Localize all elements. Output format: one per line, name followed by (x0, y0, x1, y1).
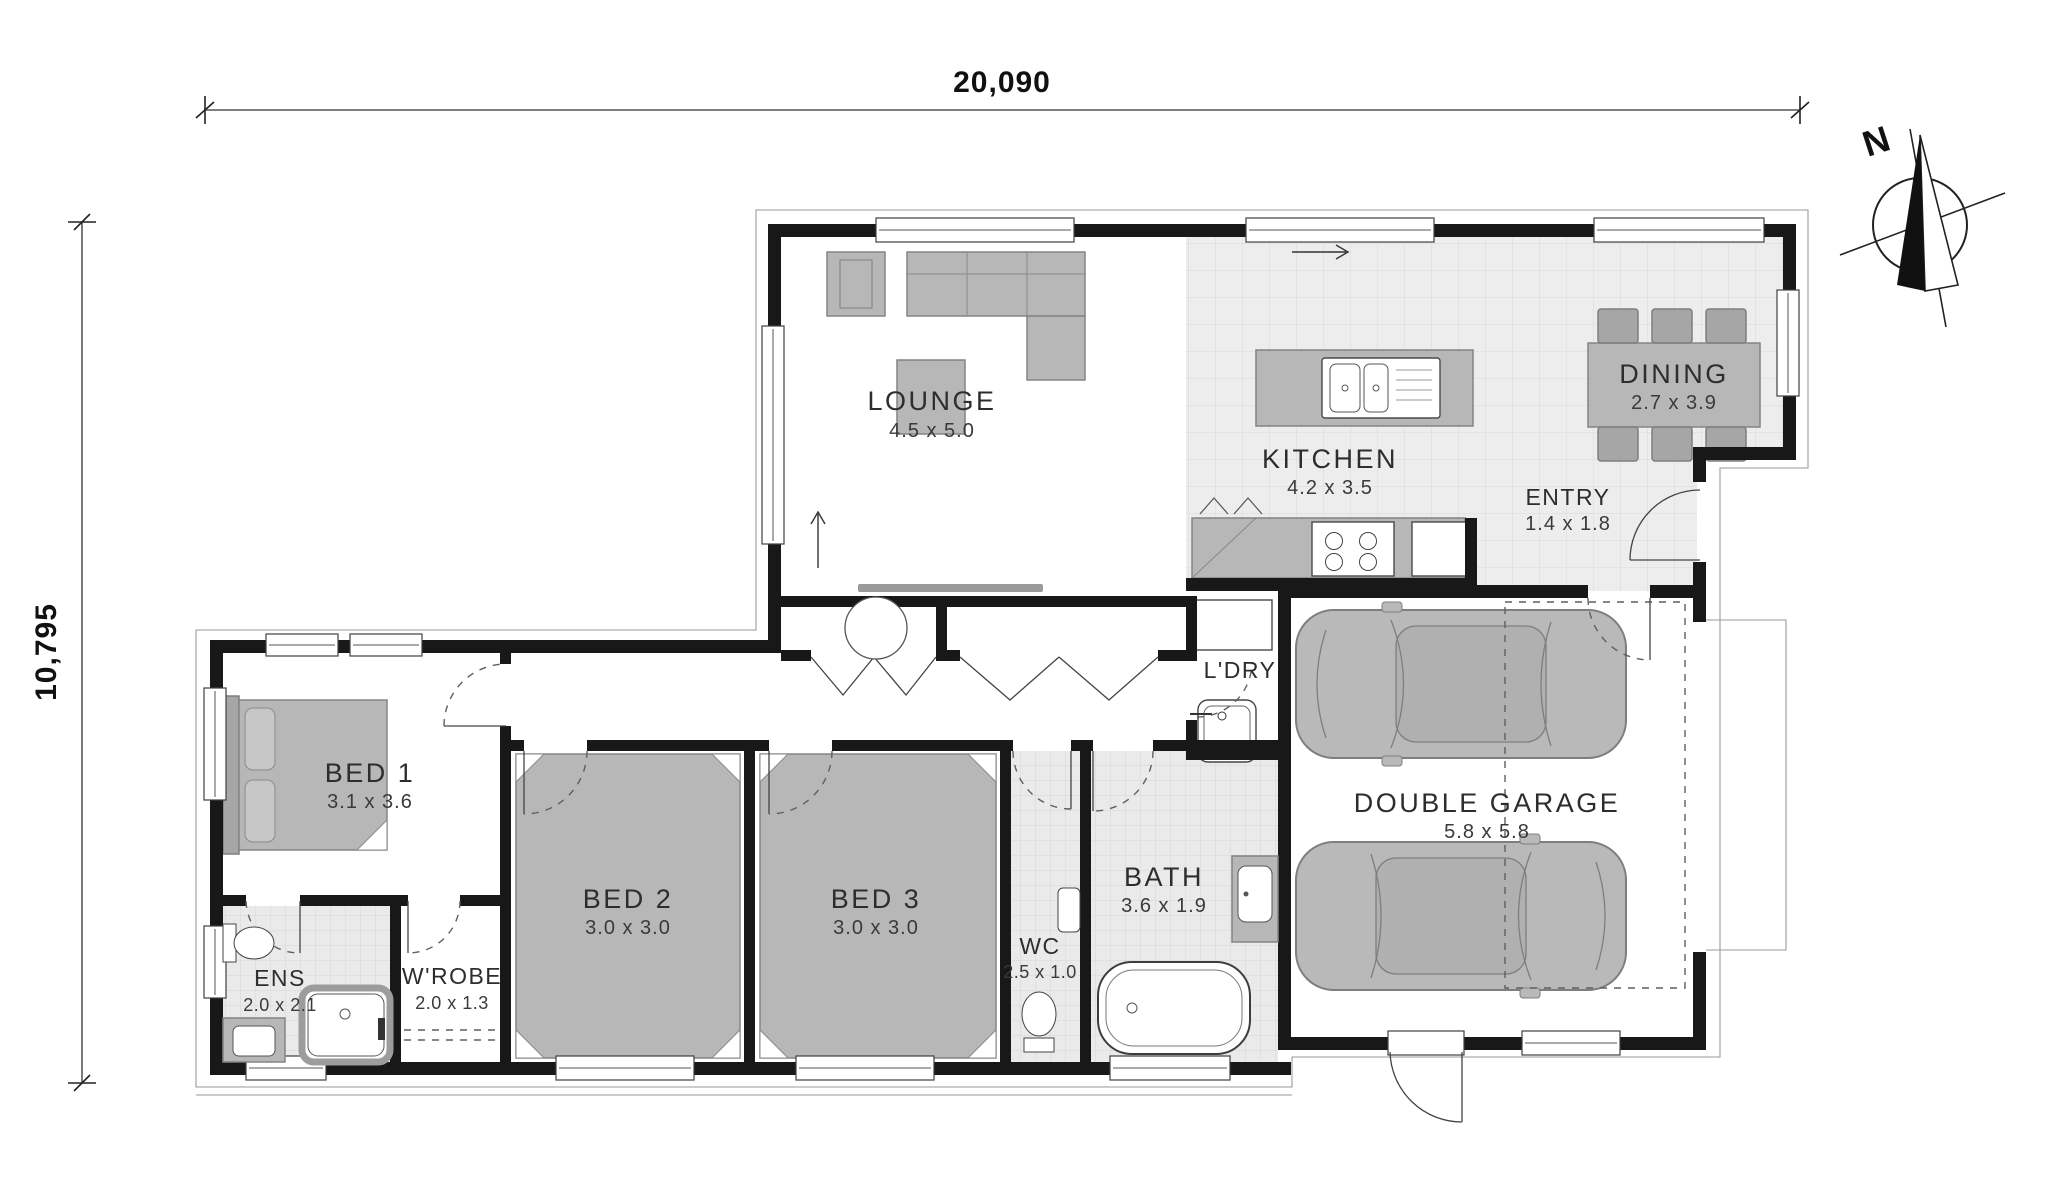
window (1522, 1031, 1620, 1055)
dining-name: DINING (1619, 359, 1729, 389)
wrobe-name: W'ROBE (402, 963, 502, 989)
north-label: N (1857, 118, 1894, 165)
door-swing (444, 664, 506, 726)
dining-dims: 2.7 x 3.9 (1631, 392, 1717, 414)
cooktop (1312, 522, 1394, 576)
room-label-bath: BATH 3.6 x 1.9 (1121, 862, 1207, 917)
kitchen-dims: 4.2 x 3.5 (1287, 477, 1373, 499)
window (876, 218, 1074, 242)
window (1594, 218, 1764, 242)
sofa-chaise (1027, 316, 1085, 380)
fridge (1412, 522, 1468, 576)
bath-dims: 3.6 x 1.9 (1121, 895, 1207, 917)
room-label-bed1: BED 1 3.1 x 3.6 (325, 758, 416, 813)
dimension-top: 20,090 (196, 66, 1809, 124)
ens-dims: 2.0 x 2.1 (243, 995, 317, 1015)
car (1296, 834, 1626, 998)
window (556, 1056, 694, 1080)
bath-basin (1238, 866, 1272, 922)
bathtub (1098, 962, 1250, 1054)
bed3-name: BED 3 (831, 884, 922, 914)
ldry-name: L'DRY (1204, 657, 1277, 683)
room-label-ens: ENS 2.0 x 2.1 (243, 965, 317, 1015)
room-label-wrobe: W'ROBE 2.0 x 1.3 (402, 963, 502, 1013)
bed3-dims: 3.0 x 3.0 (833, 917, 919, 939)
room-label-ldry: L'DRY (1204, 657, 1277, 683)
bifold-door (811, 657, 1158, 700)
bed2-dims: 3.0 x 3.0 (585, 917, 671, 939)
ens-name: ENS (254, 965, 306, 991)
window (1246, 218, 1434, 242)
toilet (1022, 992, 1056, 1052)
window (266, 634, 338, 656)
sofa (907, 252, 1085, 316)
overall-depth-label: 10,795 (30, 603, 63, 701)
room-label-entry: ENTRY 1.4 x 1.8 (1525, 484, 1611, 535)
room-label-garage: DOUBLE GARAGE 5.8 x 5.8 (1354, 788, 1621, 843)
bed1-name: BED 1 (325, 758, 416, 788)
armchair (827, 252, 885, 316)
door-swing (408, 901, 460, 953)
dining-chair (1652, 309, 1692, 343)
laundry-bench (1194, 600, 1272, 650)
bath-name: BATH (1124, 862, 1204, 892)
ens-basin (233, 1026, 275, 1056)
north-compass-icon: N (1840, 118, 2005, 327)
car (1296, 602, 1626, 766)
lounge-dims: 4.5 x 5.0 (889, 420, 975, 442)
dining-chair (1598, 427, 1638, 461)
room-label-bed3: BED 3 3.0 x 3.0 (831, 884, 922, 939)
direction-arrow (811, 512, 825, 568)
overall-width-label: 20,090 (953, 66, 1051, 99)
wc-basin (1058, 888, 1080, 932)
garage-dims: 5.8 x 5.8 (1444, 821, 1530, 843)
window (204, 688, 226, 800)
window (350, 634, 422, 656)
hot-water-cylinder (845, 597, 907, 659)
tv-shelf (858, 584, 1043, 592)
wc-name: WC (1019, 933, 1060, 959)
dining-chair (1706, 309, 1746, 343)
floor-plan-drawing: 20,090 10,795 N (0, 0, 2056, 1182)
window (762, 326, 784, 544)
dimension-left: 10,795 (30, 214, 96, 1091)
lounge-name: LOUNGE (867, 386, 996, 416)
window (1110, 1056, 1230, 1080)
entry-name: ENTRY (1525, 484, 1610, 510)
room-label-bed2: BED 2 3.0 x 3.0 (583, 884, 674, 939)
back-door-swing (1388, 1031, 1464, 1122)
entry-dims: 1.4 x 1.8 (1525, 513, 1611, 535)
wrobe-dims: 2.0 x 1.3 (415, 993, 489, 1013)
window (796, 1056, 934, 1080)
window (1777, 290, 1799, 396)
kitchen-name: KITCHEN (1262, 444, 1398, 474)
wc-dims: 2.5 x 1.0 (1003, 962, 1077, 982)
bed2-name: BED 2 (583, 884, 674, 914)
dining-chair (1598, 309, 1638, 343)
bed1-dims: 3.1 x 3.6 (327, 791, 413, 813)
room-label-lounge: LOUNGE 4.5 x 5.0 (867, 386, 996, 442)
garage-name: DOUBLE GARAGE (1354, 788, 1621, 818)
dining-chair (1652, 427, 1692, 461)
room-label-dining: DINING 2.7 x 3.9 (1619, 359, 1729, 414)
floor-plan-canvas: 20,090 10,795 N (0, 0, 2056, 1182)
